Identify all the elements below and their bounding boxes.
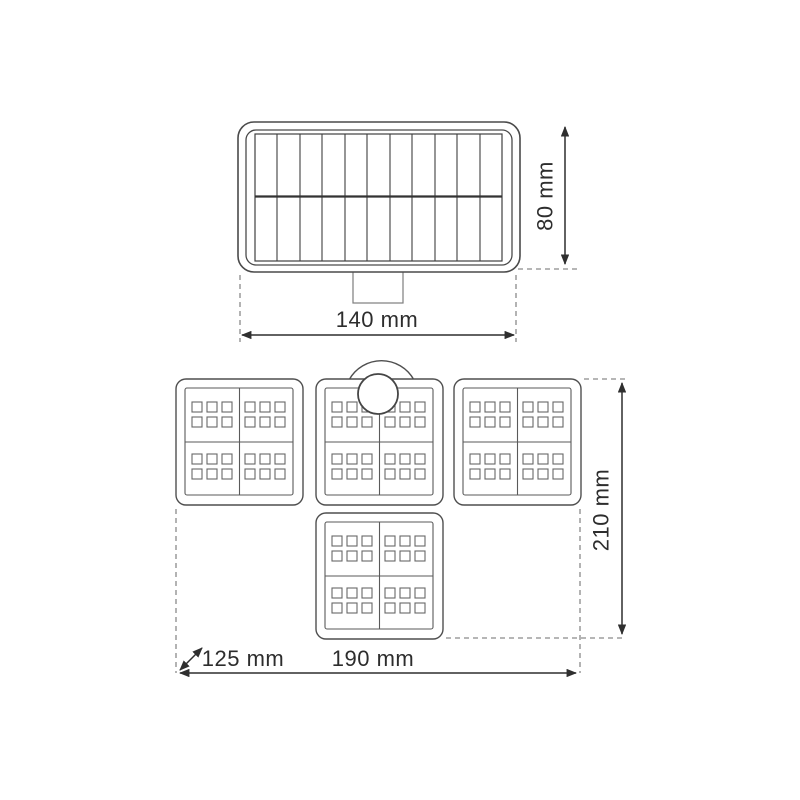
head-depth-label: 125 mm bbox=[202, 646, 284, 671]
solar-height-dimension: 80 mm bbox=[518, 127, 578, 269]
led-head-bottom-view: 210 mm 190 mm 125 mm bbox=[176, 361, 626, 673]
led-panel-right bbox=[454, 379, 581, 505]
motion-sensor-circle bbox=[358, 374, 398, 414]
solar-height-label: 80 mm bbox=[533, 161, 558, 231]
led-panel-left bbox=[176, 379, 303, 505]
head-depth-dimension: 125 mm bbox=[180, 646, 284, 671]
head-width-label: 190 mm bbox=[332, 646, 414, 671]
diagram-page: 80 mm 140 mm 210 mm 190 mm bbox=[0, 0, 800, 800]
head-height-label: 210 mm bbox=[589, 469, 614, 551]
depth-dimension-arrow bbox=[180, 648, 202, 670]
mounting-tab bbox=[353, 271, 403, 303]
dimension-diagram: 80 mm 140 mm 210 mm 190 mm bbox=[0, 0, 800, 800]
led-panel-bottom bbox=[316, 513, 443, 639]
solar-width-label: 140 mm bbox=[336, 307, 418, 332]
solar-panel-front-view: 80 mm 140 mm bbox=[238, 122, 578, 342]
